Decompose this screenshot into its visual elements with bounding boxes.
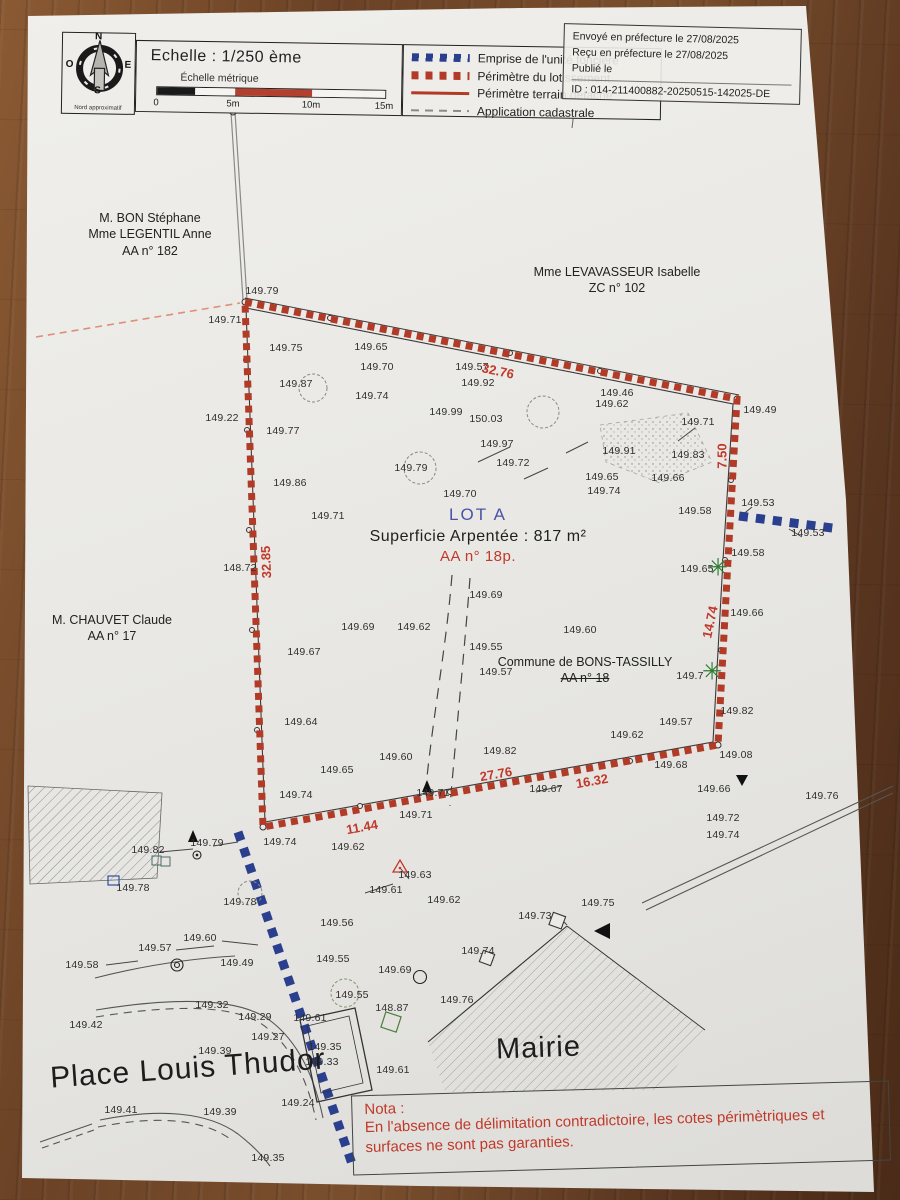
scale-title: Echelle : 1/250 ème (151, 47, 302, 67)
legend-item: Application cadastrale (411, 103, 595, 120)
compass-letter: N (95, 31, 102, 42)
place-name-labels: Place Louis ThudorMairie (0, 0, 900, 1200)
scale-tick-label: 0 (153, 97, 158, 108)
compass-letter: S (94, 85, 101, 96)
lot-name: LOT A (370, 505, 587, 525)
scale-tick-label: 15m (375, 101, 394, 112)
scale-ticks: 05m10m15m (156, 97, 386, 113)
north-approx-label: Nord approximatif (62, 105, 134, 112)
scale-segment (195, 88, 235, 96)
sw-gray-dashed-icon (411, 109, 469, 112)
legend-item-label: Application cadastrale (477, 104, 595, 120)
sw-blue-dashed-icon (412, 53, 470, 62)
place-name: Place Louis Thudor (49, 1042, 327, 1095)
scale-segment (157, 87, 195, 95)
lot-a-block: LOT A Superficie Arpentée : 817 m² AA n°… (370, 505, 587, 565)
scale-tick-label: 10m (302, 100, 321, 111)
compass-letter: E (125, 60, 132, 71)
sw-red-solid-icon (411, 91, 469, 95)
lot-parcel-ref: AA n° 18p. (370, 548, 587, 565)
prefecture-stamp: Envoyé en préfecture le 27/08/2025Reçu e… (562, 23, 802, 105)
sw-red-dashed-icon (411, 71, 469, 80)
scale-tick-label: 5m (226, 98, 239, 109)
scale-box: Echelle : 1/250 ème Échelle métrique 05m… (135, 40, 403, 116)
scale-subtitle: Échelle métrique (180, 72, 258, 85)
photo-of-cadastral-plan: M. BON StéphaneMme LEGENTIL AnneAA n° 18… (0, 0, 900, 1200)
lot-area: Superficie Arpentée : 817 m² (370, 528, 587, 546)
scale-segment (312, 90, 385, 98)
nota-box: Nota : En l'absence de délimitation cont… (351, 1081, 891, 1176)
place-name: Mairie (495, 1031, 581, 1067)
scale-segment (235, 89, 312, 97)
stamp-line: ID : 014-211400882-20250515-142025-DE (571, 79, 791, 103)
compass-letter: O (66, 59, 74, 70)
north-compass: NESO Nord approximatif (61, 32, 136, 115)
